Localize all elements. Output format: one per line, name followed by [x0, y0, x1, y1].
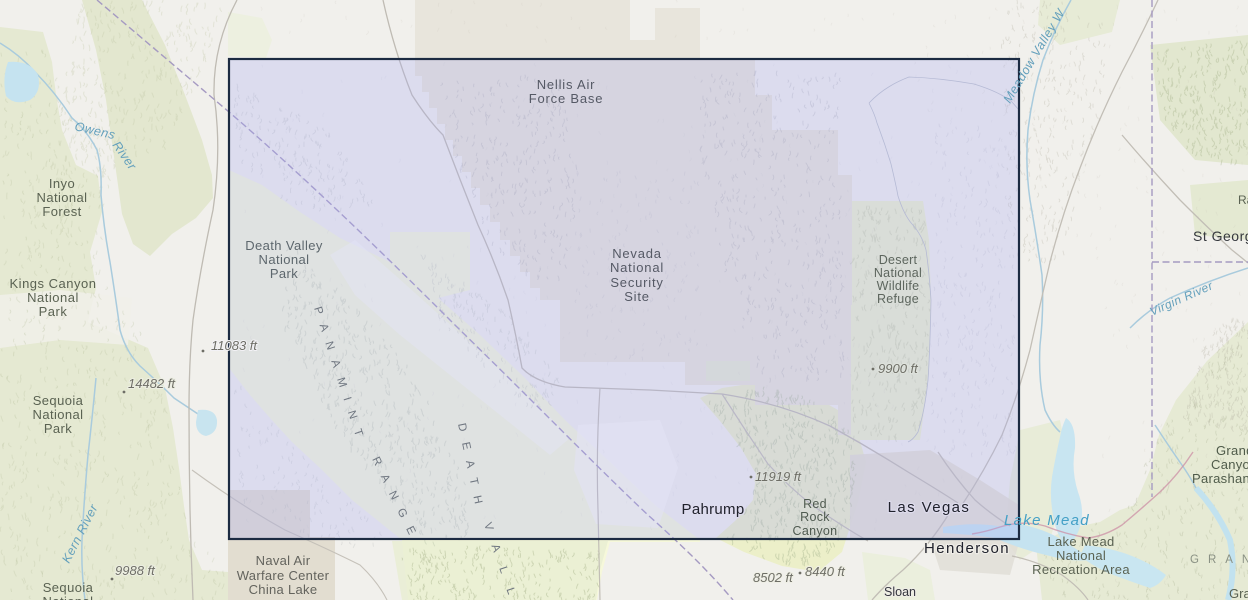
svg-text:9900 ft: 9900 ft — [878, 361, 919, 376]
svg-text:Park: Park — [270, 266, 298, 281]
svg-text:National: National — [43, 594, 94, 600]
svg-text:11919 ft: 11919 ft — [755, 469, 802, 484]
svg-text:Park: Park — [44, 421, 72, 436]
svg-text:Sequoia: Sequoia — [33, 393, 84, 408]
svg-text:Site: Site — [624, 289, 650, 304]
svg-text:8502 ft: 8502 ft — [753, 570, 794, 585]
svg-text:Red: Red — [803, 497, 827, 511]
svg-text:Nellis Air: Nellis Air — [537, 77, 596, 92]
svg-text:St George: St George — [1193, 228, 1248, 244]
svg-text:Pahrump: Pahrump — [682, 501, 745, 518]
svg-text:Recreation Area: Recreation Area — [1032, 562, 1130, 577]
svg-text:Force Base: Force Base — [529, 91, 603, 106]
svg-text:Lake Mead: Lake Mead — [1004, 512, 1090, 529]
svg-text:National: National — [259, 252, 310, 267]
svg-text:Sequoia: Sequoia — [43, 580, 94, 595]
svg-text:National: National — [874, 266, 922, 280]
svg-text:Inyo: Inyo — [49, 176, 75, 191]
svg-text:Death Valley: Death Valley — [245, 238, 323, 253]
svg-text:Forest: Forest — [42, 204, 81, 219]
svg-text:Grand: Grand — [1216, 443, 1248, 458]
svg-text:Lake Mead: Lake Mead — [1047, 534, 1114, 549]
svg-text:Naval Air: Naval Air — [256, 553, 311, 568]
svg-text:Rock: Rock — [800, 510, 830, 524]
svg-text:Park: Park — [39, 304, 68, 319]
svg-text:8440 ft: 8440 ft — [805, 564, 846, 579]
svg-text:National: National — [610, 260, 664, 275]
svg-text:Refuge: Refuge — [877, 292, 919, 306]
svg-text:Gran: Gran — [1229, 586, 1248, 600]
svg-text:Wildlife: Wildlife — [877, 279, 920, 293]
svg-text:Nevada: Nevada — [612, 246, 662, 261]
svg-text:Parashant: Parashant — [1192, 471, 1248, 486]
svg-text:National: National — [33, 407, 84, 422]
svg-text:Kings Canyon: Kings Canyon — [10, 276, 97, 291]
svg-text:Las Vegas: Las Vegas — [888, 499, 971, 516]
svg-text:GRAN: GRAN — [1190, 554, 1248, 566]
svg-text:Canyon: Canyon — [1211, 457, 1248, 472]
svg-text:Ra: Ra — [1238, 193, 1248, 207]
svg-text:Security: Security — [610, 275, 663, 290]
svg-text:China Lake: China Lake — [249, 582, 318, 597]
svg-text:14482 ft: 14482 ft — [128, 376, 176, 391]
svg-text:National: National — [1056, 548, 1106, 563]
svg-text:Sloan: Sloan — [884, 585, 916, 599]
svg-text:Desert: Desert — [879, 253, 918, 267]
svg-text:Warfare Center: Warfare Center — [237, 568, 330, 583]
svg-text:11083 ft: 11083 ft — [211, 338, 258, 353]
svg-text:Canyon: Canyon — [793, 524, 838, 538]
svg-text:9988 ft: 9988 ft — [115, 563, 156, 578]
svg-text:National: National — [27, 290, 79, 305]
svg-text:Henderson: Henderson — [924, 540, 1010, 557]
svg-text:National: National — [37, 190, 88, 205]
